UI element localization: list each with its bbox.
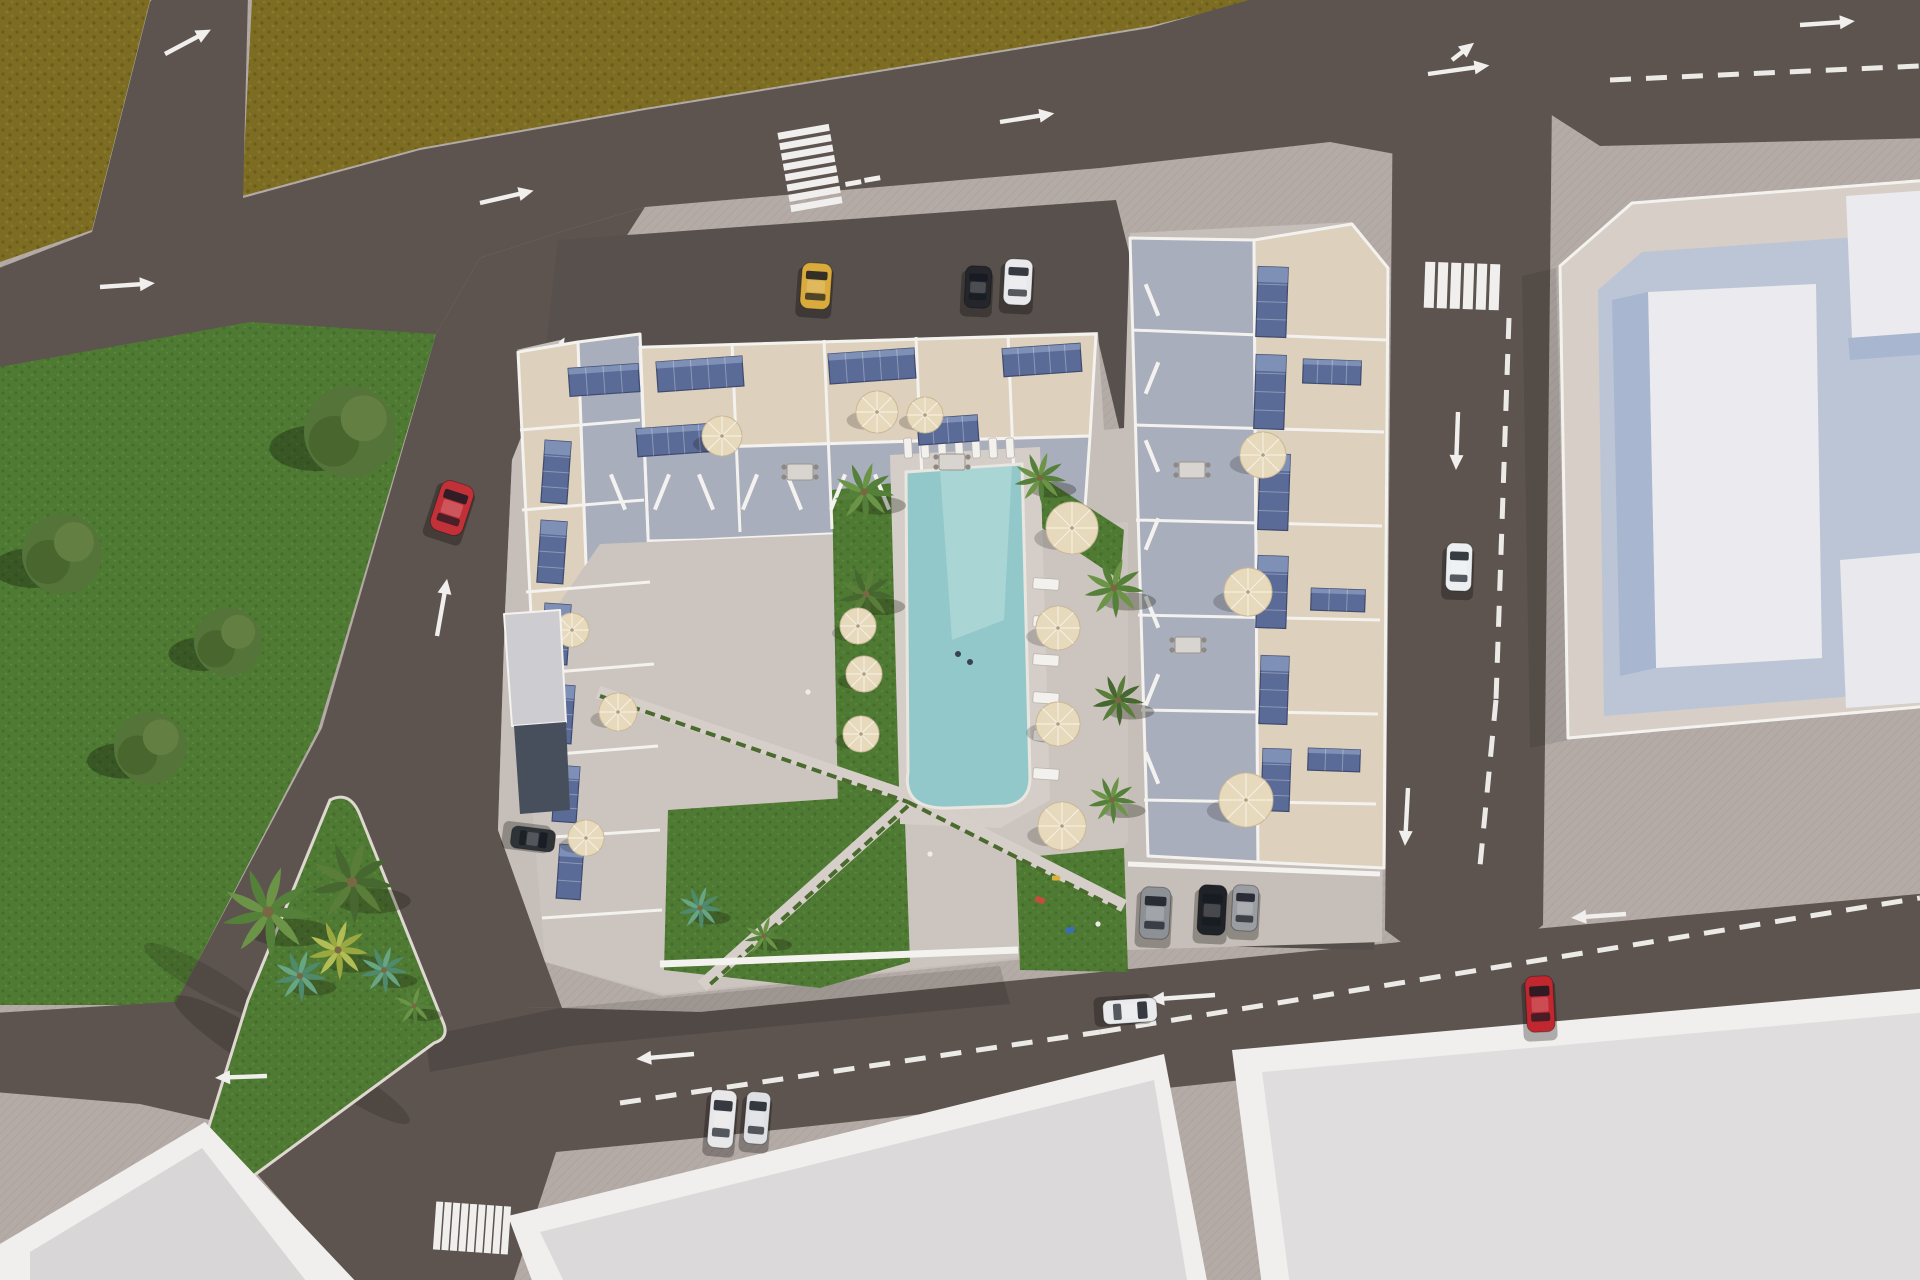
sun-lounger [1033, 578, 1060, 591]
terrace-table [933, 454, 970, 470]
building-east-volume3 [1840, 552, 1920, 708]
table-chair [1173, 462, 1178, 467]
car-gray2-parked-east [1226, 884, 1261, 941]
car-rear-window [1202, 917, 1221, 925]
palm-trunk [1037, 475, 1043, 481]
sun-lounger [1005, 438, 1014, 458]
solar-panel-glint [1258, 266, 1289, 282]
solar-panel [568, 364, 640, 397]
table-chair [1205, 462, 1210, 467]
parasol-pole [923, 413, 927, 417]
solar-panel [1254, 354, 1287, 429]
car-roof [807, 280, 826, 293]
car-rear-window [712, 1127, 730, 1137]
solar-panel-glint [1263, 749, 1291, 764]
terrace-table [1169, 637, 1206, 653]
site-plan-render [0, 0, 1920, 1280]
car-windshield [1529, 986, 1550, 997]
table-chair [781, 474, 786, 479]
car-yellow-parked [795, 262, 835, 319]
solar-panel [541, 440, 571, 504]
car-white-south-road [1093, 993, 1158, 1027]
palm-trunk [1115, 697, 1121, 703]
parasol-pole [584, 836, 588, 840]
car-windshield [1450, 551, 1469, 560]
tree-canopy-light [221, 615, 255, 649]
crosswalk-bar [1424, 262, 1436, 308]
car-black-parked-east [1192, 884, 1229, 945]
table-chair [965, 454, 970, 459]
pool-light-reflection [940, 466, 1012, 640]
table-chair [1169, 637, 1174, 642]
solar-panel [1259, 656, 1289, 725]
parasol-pole [1056, 626, 1060, 630]
terrace-table [781, 464, 818, 480]
playground-item [1052, 876, 1060, 881]
garage-ramp [514, 722, 570, 814]
car-gray-parked-east [1134, 886, 1173, 949]
table-chair [1205, 472, 1210, 477]
car-rear-window [805, 293, 826, 301]
tree-canopy-light [341, 395, 387, 441]
tree-canopy-light [54, 522, 94, 562]
terrace-table [1173, 462, 1210, 478]
car-rear-window [1144, 921, 1165, 930]
parasol-pole [1070, 526, 1074, 530]
solar-panel [1256, 266, 1288, 337]
solar-panel-glint [540, 520, 567, 535]
person [927, 851, 932, 856]
palm-trunk [262, 906, 273, 917]
car-white-south1 [702, 1089, 740, 1159]
palm-trunk [697, 905, 702, 910]
tree-canopy-light [143, 719, 179, 755]
table-top [1179, 462, 1205, 478]
table-top [1175, 637, 1201, 653]
person [805, 689, 810, 694]
car-white-south2 [738, 1091, 773, 1154]
car-roof [970, 282, 986, 294]
car-roof [749, 1111, 765, 1126]
palm-trunk [381, 967, 387, 973]
table-chair [813, 464, 818, 469]
parasol-pole [720, 434, 724, 438]
solar-panel-glint [544, 440, 571, 455]
car-rear-window [1235, 915, 1253, 923]
person [1095, 921, 1100, 926]
car-roof [1009, 276, 1026, 289]
palm-trunk [1109, 797, 1115, 803]
swimmer [955, 651, 961, 657]
crosswalk-bar [1489, 264, 1501, 310]
car-rear-window [1113, 1003, 1122, 1020]
parasol-pole [862, 672, 866, 676]
swimmer [967, 659, 973, 665]
parasol-pole [1261, 453, 1265, 457]
building-east-volume2 [1846, 190, 1920, 338]
car-white-east-road [1441, 542, 1475, 600]
palm-trunk [1110, 584, 1117, 591]
solar-panel-glint [1258, 555, 1289, 572]
palm-trunk [334, 946, 341, 953]
parasol-pole [1244, 798, 1248, 802]
parasol-pole [616, 710, 620, 714]
solar-panel [828, 348, 916, 384]
garage-shed [504, 610, 566, 726]
car-windshield [713, 1100, 733, 1112]
car-roof [1237, 902, 1253, 915]
crosswalk-bar [1437, 262, 1449, 308]
car-roof [1203, 904, 1220, 918]
car-red-southeast [1521, 975, 1558, 1042]
car-black-parked-north [959, 265, 994, 318]
sun-lounger [903, 438, 912, 458]
car-windshield [749, 1101, 767, 1112]
car-rear-window [1008, 289, 1027, 297]
sun-lounger [1033, 768, 1060, 781]
car-roof [1531, 997, 1549, 1012]
palm-trunk [860, 488, 867, 495]
parasol-pole [856, 624, 860, 628]
car-windshield [1202, 893, 1223, 903]
car-windshield [1137, 1001, 1148, 1019]
table-chair [781, 464, 786, 469]
table-chair [1201, 637, 1206, 642]
car-windshield [969, 273, 988, 282]
car-rear-window [1531, 1012, 1550, 1021]
parasol-pole [1056, 722, 1060, 726]
parasol-pole [1060, 824, 1064, 828]
parasol-pole [859, 732, 863, 736]
car-roof [1122, 1003, 1137, 1018]
car-windshield [1145, 896, 1167, 906]
crosswalk-bar [1476, 264, 1488, 310]
solar-panel [656, 356, 744, 392]
solar-panel [1311, 588, 1366, 612]
sun-lounger [988, 438, 997, 458]
parasol-pole [1246, 590, 1250, 594]
car-windshield [1236, 893, 1255, 902]
car-roof [1146, 906, 1165, 920]
table-chair [965, 464, 970, 469]
table-chair [1201, 647, 1206, 652]
table-chair [1173, 472, 1178, 477]
car-roof [526, 832, 539, 846]
palm-trunk [863, 591, 870, 598]
car-roof [1451, 561, 1467, 574]
car-rear-window [1450, 574, 1468, 582]
solar-panel [1303, 359, 1362, 385]
car-rear-window [747, 1126, 764, 1135]
car-white-parked-north [998, 258, 1035, 315]
crosswalk-bar [1450, 263, 1462, 309]
building-east-volume [1648, 284, 1822, 668]
car-rear-window [968, 293, 986, 300]
palm-trunk [762, 934, 767, 939]
car-windshield [806, 271, 828, 281]
palm-trunk [347, 877, 357, 887]
parasol-pole [570, 628, 574, 632]
aerial-site-plan: Aerial 3D site-plan render of residentia… [0, 0, 1920, 1280]
parasol-pole [875, 410, 879, 414]
car-roof [714, 1111, 731, 1127]
palm-trunk [412, 1004, 417, 1009]
table-chair [933, 464, 938, 469]
crosswalk-south [433, 1201, 511, 1254]
solar-panel [537, 520, 567, 584]
solar-panel [1002, 343, 1082, 376]
table-top [939, 454, 965, 470]
solar-panel-glint [1261, 656, 1290, 672]
solar-panel-glint [1256, 354, 1287, 371]
crosswalk-bar [1463, 263, 1475, 309]
palm-trunk [297, 973, 303, 979]
table-top [787, 464, 813, 480]
table-chair [1169, 647, 1174, 652]
solar-panel [1308, 748, 1361, 772]
table-chair [933, 454, 938, 459]
car-windshield [1008, 267, 1029, 276]
table-chair [813, 474, 818, 479]
sun-lounger [1033, 654, 1060, 667]
